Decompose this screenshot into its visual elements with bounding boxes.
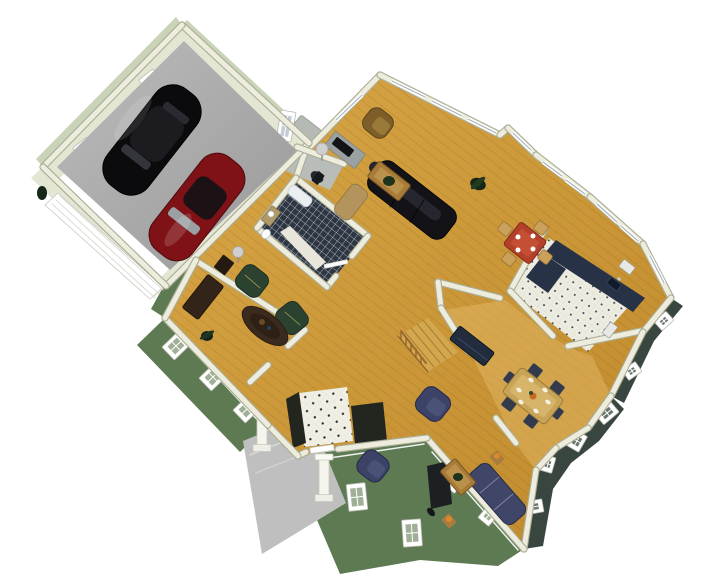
porch-column-right-base (315, 495, 333, 502)
breakfast-plate-4 (531, 247, 536, 252)
family-table-plant (453, 473, 463, 481)
porch-column-right (319, 457, 329, 497)
floorplan-canvas (0, 0, 720, 576)
foyer-tile-floor (299, 387, 353, 447)
breakfast-plate-3 (516, 248, 521, 253)
den-rug-item (259, 319, 265, 325)
wall-top-12 (438, 282, 441, 308)
family-end-lamp-2 (446, 516, 452, 522)
coffee-table-plant (383, 176, 395, 186)
kitchen-faucet (617, 277, 620, 280)
den-lamp-shade (233, 247, 244, 258)
living-floor-lamp-shade (316, 143, 328, 155)
dining-centerpiece-leaf (529, 391, 533, 395)
porch-column-left-base (253, 445, 271, 452)
bath-sink (268, 211, 274, 217)
breakfast-plate-1 (516, 235, 521, 240)
family-end-lamp-1 (494, 453, 500, 459)
front-window-2 (402, 519, 423, 547)
den-rug-item-2 (267, 326, 271, 330)
breakfast-plate-2 (531, 234, 536, 239)
front-window-1 (346, 483, 368, 512)
closet-opening-2 (351, 402, 387, 444)
porch-column-right-cap (315, 454, 333, 460)
shrub-garage-corner (37, 186, 47, 200)
floorplan-3d-render (0, 0, 720, 576)
